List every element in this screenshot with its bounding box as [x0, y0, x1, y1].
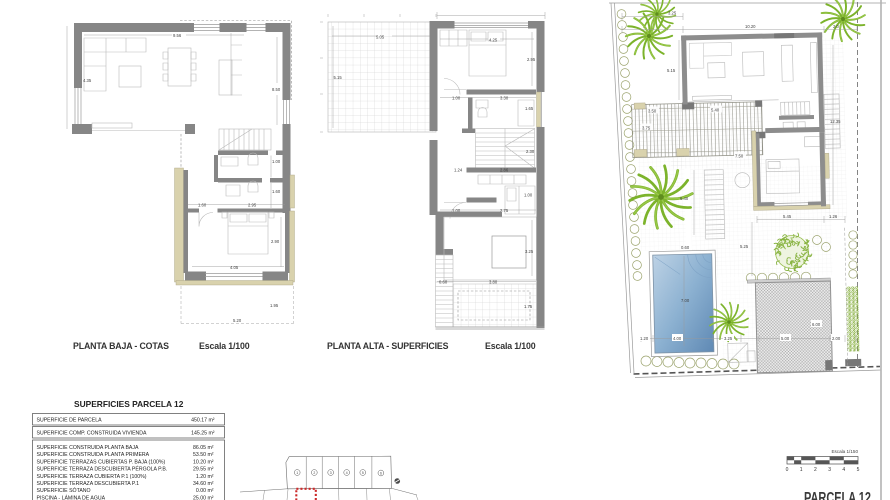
svg-text:12.35: 12.35 [830, 119, 841, 124]
svg-text:6.00: 6.00 [812, 322, 821, 327]
svg-text:4.00: 4.00 [673, 336, 682, 341]
svg-text:SUPERFICIE DE PARCELA: SUPERFICIE DE PARCELA [37, 418, 103, 424]
svg-text:4: 4 [842, 467, 845, 473]
svg-text:10.20: 10.20 [745, 24, 756, 29]
svg-text:5.20: 5.20 [233, 318, 242, 323]
svg-text:1.26: 1.26 [829, 214, 838, 219]
svg-text:5.40: 5.40 [711, 108, 720, 113]
svg-text:1.00: 1.00 [452, 96, 461, 101]
svg-text:4: 4 [346, 471, 348, 475]
svg-text:1.00: 1.00 [524, 193, 533, 198]
svg-text:0.00 m²: 0.00 m² [196, 488, 214, 494]
svg-text:1.00: 1.00 [272, 159, 281, 164]
svg-text:PARCELA 12: PARCELA 12 [804, 490, 871, 500]
svg-text:145.25 m²: 145.25 m² [191, 431, 215, 437]
svg-text:0: 0 [786, 467, 789, 473]
svg-text:1.20 m²: 1.20 m² [196, 474, 214, 480]
svg-text:Escala 1/100: Escala 1/100 [485, 341, 536, 351]
svg-text:7.00: 7.00 [681, 298, 690, 303]
svg-text:SUPERFICIE TERRAZA CUBIERTA P.: SUPERFICIE TERRAZA CUBIERTA P.1 (100%) [37, 474, 147, 480]
svg-text:1: 1 [800, 467, 803, 473]
svg-text:6.40: 6.40 [680, 196, 689, 201]
svg-text:PISCINA - LÁMINA DE AGUA: PISCINA - LÁMINA DE AGUA [37, 494, 106, 500]
svg-text:2.30: 2.30 [526, 149, 535, 154]
svg-text:5.05: 5.05 [376, 35, 385, 40]
svg-text:Escala 1/100: Escala 1/100 [199, 341, 250, 351]
svg-text:9.56: 9.56 [173, 33, 182, 38]
svg-text:3: 3 [828, 467, 831, 473]
svg-text:3.25: 3.25 [668, 11, 677, 16]
svg-text:4.35: 4.35 [83, 78, 92, 83]
svg-text:450.17 m²: 450.17 m² [191, 418, 215, 424]
svg-text:0.60: 0.60 [681, 245, 690, 250]
svg-text:1.24: 1.24 [454, 168, 463, 173]
svg-text:SUPERFICIE TERRAZA DESCUBIERTA: SUPERFICIE TERRAZA DESCUBIERTA PÉRGOLA P… [37, 466, 168, 473]
svg-text:1: 1 [296, 471, 298, 475]
svg-text:4.25: 4.25 [489, 38, 498, 43]
svg-text:34.60 m²: 34.60 m² [193, 481, 214, 487]
svg-text:2.0: 2.0 [833, 24, 839, 29]
svg-text:5.25: 5.25 [740, 244, 749, 249]
svg-text:3.50: 3.50 [648, 109, 657, 114]
svg-text:8.50: 8.50 [272, 87, 281, 92]
svg-text:SUPERFICIE TERRAZAS CUBIERTAS: SUPERFICIE TERRAZAS CUBIERTAS P. BAJA (1… [37, 459, 166, 465]
svg-text:10.20 m²: 10.20 m² [193, 459, 214, 465]
svg-text:5.15: 5.15 [667, 68, 676, 73]
svg-text:2.00: 2.00 [832, 336, 841, 341]
svg-text:1.95: 1.95 [270, 303, 279, 308]
svg-text:4.05: 4.05 [230, 265, 239, 270]
svg-text:5: 5 [362, 471, 364, 475]
svg-text:2.90: 2.90 [271, 239, 280, 244]
svg-text:1.75: 1.75 [524, 304, 533, 309]
svg-text:3.25: 3.25 [724, 336, 733, 341]
svg-text:3: 3 [330, 471, 332, 475]
svg-text:6: 6 [380, 471, 382, 475]
svg-text:SUPERFICIE SÓTANO: SUPERFICIE SÓTANO [37, 487, 91, 494]
svg-text:5.45: 5.45 [783, 214, 792, 219]
svg-text:86.05 m²: 86.05 m² [193, 445, 214, 451]
svg-text:SUPERFICIE CONSTRUIDA PLANTA B: SUPERFICIE CONSTRUIDA PLANTA BAJA [37, 445, 139, 451]
svg-text:5.15: 5.15 [334, 75, 343, 80]
svg-text:5.00: 5.00 [781, 336, 790, 341]
svg-text:1.20: 1.20 [640, 336, 649, 341]
svg-text:SUPERFICIE TERRAZA DESCUBIERTA: SUPERFICIE TERRAZA DESCUBIERTA P.1 [37, 481, 140, 487]
svg-text:5: 5 [857, 467, 860, 473]
svg-text:PLANTA BAJA - COTAS: PLANTA BAJA - COTAS [73, 341, 169, 351]
svg-text:SUPERFICIE COMP. CONSTRUIDA VI: SUPERFICIE COMP. CONSTRUIDA VIVIENDA [37, 431, 148, 437]
svg-text:29.55 m²: 29.55 m² [193, 467, 214, 473]
svg-text:1.60: 1.60 [272, 189, 281, 194]
svg-text:53.50 m²: 53.50 m² [193, 452, 214, 458]
svg-text:2: 2 [313, 471, 315, 475]
svg-text:3.75: 3.75 [642, 126, 651, 131]
svg-text:SUPERFICIE CONSTRUIDA PLANTA P: SUPERFICIE CONSTRUIDA PLANTA PRIMERA [37, 452, 150, 458]
svg-text:3.25: 3.25 [525, 249, 534, 254]
svg-text:2.95: 2.95 [527, 57, 536, 62]
svg-text:2.86: 2.86 [500, 168, 509, 173]
svg-text:25.00 m²: 25.00 m² [193, 495, 214, 500]
svg-text:1.60: 1.60 [198, 203, 207, 208]
svg-text:1.65: 1.65 [525, 106, 534, 111]
svg-text:0.60: 0.60 [439, 280, 448, 285]
svg-text:7.50: 7.50 [735, 154, 744, 159]
svg-text:2.95: 2.95 [248, 203, 257, 208]
svg-text:2: 2 [814, 467, 817, 473]
svg-text:Escala 1/150: Escala 1/150 [831, 449, 858, 454]
svg-text:SUPERFICIES PARCELA 12: SUPERFICIES PARCELA 12 [74, 399, 184, 409]
svg-text:3.30: 3.30 [500, 96, 509, 101]
svg-text:PLANTA ALTA - SUPERFICIES: PLANTA ALTA - SUPERFICIES [327, 341, 449, 351]
